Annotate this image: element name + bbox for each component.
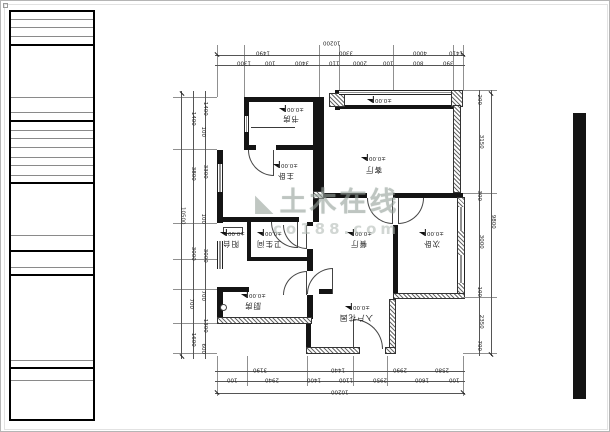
dimension-value: 700 [188,299,194,310]
titleblock-row [11,28,93,37]
hatched-wall [453,105,461,193]
elevation-flag-icon [419,233,425,237]
dimension-value: 100 [383,59,394,65]
elevation-flag-icon [373,96,374,103]
dimension-value: 100 [227,376,238,382]
room-label-side-balcony: 阳台 [222,240,239,248]
extension-line [173,97,217,98]
wall [339,105,453,109]
elevation-value: ±0.00 [369,155,386,161]
titleblock-row [11,176,93,184]
dimension-value: 2580 [435,366,449,372]
dimension-line [181,91,182,359]
dimension-value: 3800 [189,167,195,181]
elevation-flag-icon [220,233,226,237]
elevation-flag-icon [285,105,286,112]
dimension-value: 2940 [265,376,279,382]
elevation-flag-icon [241,295,247,299]
wall [319,97,324,193]
window [339,90,451,95]
elevation-flag-icon [273,165,279,169]
extension-line [463,45,464,90]
wall [244,97,323,102]
dimension-value: 600 [200,344,206,355]
dimension-value: 110 [329,59,340,65]
titleblock-row [11,158,93,166]
dimension-value: 3190 [253,366,267,372]
extension-line [244,45,245,97]
elevation-value: ±0.00 [287,106,304,112]
dimension-value: 1300 [237,59,251,65]
room-label-living-room: 客厅 [365,166,382,174]
titleblock-row [11,166,93,176]
dimension-value: 1100 [339,376,353,382]
titleblock-row [11,37,93,46]
titleblock-row [11,148,93,158]
watermark: ◣ 土木在线 [255,189,399,216]
elevation-flag-icon [351,303,352,310]
wall [247,222,251,259]
extension-line [319,45,320,97]
titleblock-row [11,20,93,28]
titleblock-row [11,252,93,268]
dimension-value: 3000 [477,235,483,249]
room-label-master-bedroom: 主卧 [277,172,294,180]
door-leaf [353,319,354,349]
titleblock-row [11,46,93,98]
flue-box [329,93,345,107]
elevation-flag-icon [263,229,264,236]
wall [307,249,313,271]
corner-mark [3,3,8,8]
dimension-value: 10200 [331,388,349,394]
dimension-value: 200 [476,95,482,106]
elevation-flag-icon [367,154,368,161]
dimension-value: 3000 [189,247,195,261]
elevation-flag-icon [345,307,351,311]
dimension-value: 100 [200,127,206,138]
elevation-flag-icon [367,100,373,104]
right-black-bar [573,113,586,399]
extension-line [217,45,218,97]
titleblock-row [11,98,93,113]
titleblock-row [11,361,93,369]
elevation-flag-icon [279,109,285,113]
titleblock-row [11,12,93,20]
window [457,255,465,283]
dimension-value: 4000 [413,49,427,55]
hatched-wall [385,347,396,354]
dimension-value: 3150 [477,135,483,149]
titleblock-row [11,369,93,381]
room-label-second-bedroom: 次卧 [423,240,440,248]
floor-drain-icon [220,304,227,311]
dimension-value: 100 [476,287,482,298]
hatched-wall [393,293,465,299]
elevation-value: ±0.00 [353,304,370,310]
elevation-flag-icon [425,229,426,236]
room-label-dining-room: 餐厅 [350,240,367,248]
elevation-marker: ±0.00 [345,303,370,310]
dimension-value: 700 [200,291,206,302]
room-label-study: 书房 [282,115,299,123]
dimension-value: 1600 [189,333,195,347]
dimension-value: 100 [449,376,460,382]
extension-line [173,289,217,290]
elevation-marker: ±0.00 [220,229,245,236]
titleblock-row [11,113,93,122]
room-label-kitchen: 厨房 [244,302,261,310]
dimension-value: 390 [443,59,454,65]
titleblock-row [11,184,93,236]
dimension-line [215,65,465,66]
hatched-wall [217,317,312,324]
elevation-marker: ±0.00 [241,291,266,298]
furniture-line [251,127,295,128]
hatched-wall [389,299,396,349]
dimension-value: 10500 [179,207,185,225]
dimension-value: 2000 [353,59,367,65]
dimension-value: 1440 [331,366,345,372]
dimension-value: 2950 [373,376,387,382]
elevation-value: ±0.00 [228,230,245,236]
titleblock [9,10,95,421]
dimension-value: 2350 [477,315,483,329]
window [217,164,223,192]
watermark-triangle-icon: ◣ [255,191,273,215]
dimension-value: 10200 [323,39,341,45]
dimension-value: 800 [413,59,424,65]
cad-floorplan-screenshot: 10200 1490 3300 4000 1410 1300 100 3400 … [0,0,610,432]
titleblock-row [11,139,93,148]
dimension-value: 3400 [295,59,309,65]
elevation-marker: ±0.00 [279,105,304,112]
dimension-value: 1400 [307,376,321,382]
elevation-marker: ±0.00 [419,229,444,236]
titleblock-row [11,131,93,139]
dimension-value: 3300 [339,49,353,55]
elevation-flag-icon [361,158,367,162]
dimension-value: 1400 [189,112,195,126]
watermark-site-text: co188.com [273,220,400,238]
dimension-value: 1600 [415,376,429,382]
wall [307,295,313,319]
titleblock-row [11,268,93,276]
wall [247,257,309,261]
wall [217,150,223,164]
extension-line [173,149,217,150]
extension-line [173,323,217,324]
dimension-value: 2990 [393,366,407,372]
room-label-bathroom: 卫生间 [256,240,282,248]
titleblock-row [11,381,93,401]
wall [244,102,249,116]
elevation-marker: ±0.00 [361,154,386,161]
elevation-marker: ±0.00 [367,96,392,103]
dimension-line [193,91,194,359]
elevation-value: ±0.00 [375,97,392,103]
extension-line [217,356,218,396]
wall [217,289,223,317]
elevation-value: ±0.00 [427,230,444,236]
elevation-flag-icon [257,233,263,237]
dimension-value: 100 [265,59,276,65]
dimension-value: 300 [476,191,482,202]
dimension-value: 1300 [201,319,207,333]
room-label-entry-garden: 入户花园 [339,314,373,322]
dimension-value: 700 [476,341,482,352]
titleblock-row [11,236,93,252]
dimension-value: 3300 [201,165,207,179]
extension-line [393,45,394,90]
dimension-value: 1400 [201,102,207,116]
watermark-brand-text: 土木在线 [279,189,399,216]
window [244,116,249,132]
elevation-value: ±0.00 [249,292,266,298]
elevation-value: ±0.00 [281,162,298,168]
titleblock-row [11,122,93,131]
dimension-value: 3000 [201,249,207,263]
dimension-value: 9800 [489,215,495,229]
dimension-value: 100 [200,214,206,225]
door-leaf [332,268,333,294]
elevation-flag-icon [226,229,227,236]
elevation-marker: ±0.00 [273,161,298,168]
window [457,207,465,231]
dimension-value: 1490 [256,49,270,55]
elevation-flag-icon [279,161,280,168]
extension-line [463,356,464,396]
elevation-flag-icon [247,291,248,298]
hatched-wall [306,347,360,354]
titleblock-row [11,276,93,361]
